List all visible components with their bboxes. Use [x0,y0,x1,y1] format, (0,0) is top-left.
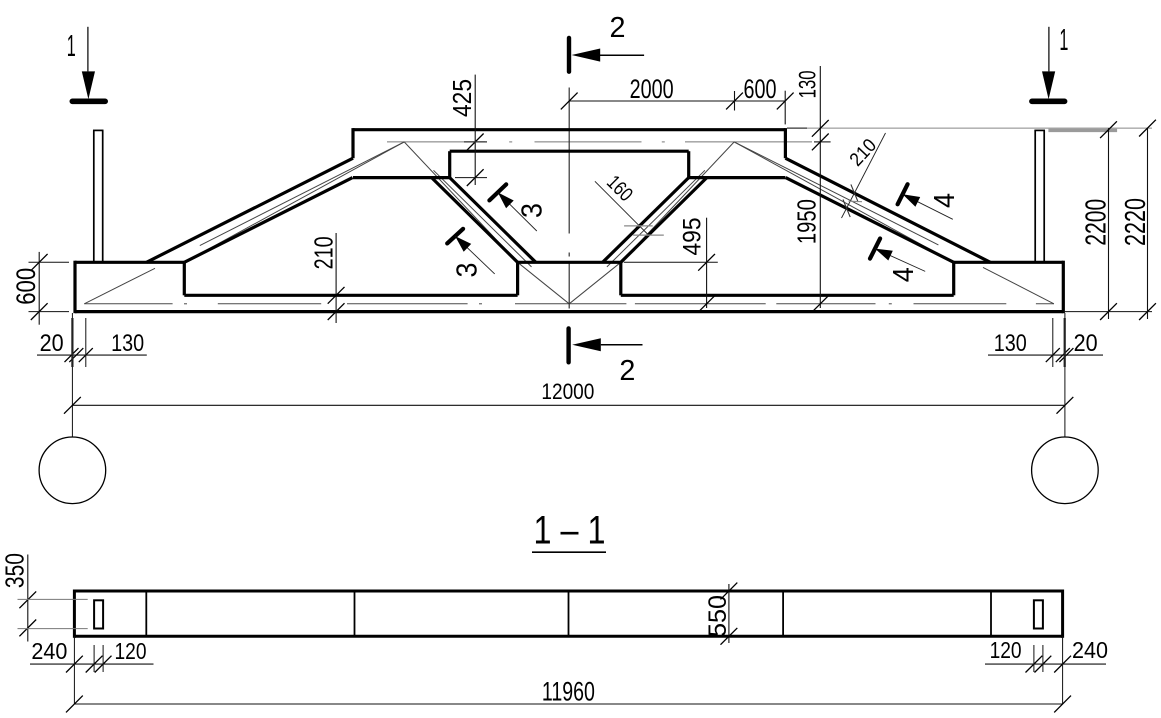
svg-text:2: 2 [619,355,635,387]
svg-text:20: 20 [40,330,64,357]
svg-text:600: 600 [744,74,777,104]
svg-text:120: 120 [115,638,147,664]
svg-text:2220: 2220 [1120,198,1152,246]
svg-text:2: 2 [610,12,626,44]
svg-text:120: 120 [990,637,1022,663]
svg-text:600: 600 [11,268,41,305]
svg-text:4: 4 [888,267,920,282]
svg-text:240: 240 [1072,637,1108,663]
svg-text:1: 1 [1059,22,1068,57]
svg-text:130: 130 [795,70,822,98]
svg-text:11960: 11960 [542,676,595,706]
svg-text:350: 350 [0,553,29,588]
svg-text:4: 4 [929,193,961,208]
svg-text:1: 1 [67,28,76,63]
svg-text:130: 130 [111,330,144,357]
svg-text:210: 210 [309,236,339,269]
svg-text:3: 3 [516,203,548,218]
svg-text:2000: 2000 [630,74,674,104]
svg-text:130: 130 [994,330,1027,357]
svg-text:240: 240 [31,638,67,664]
svg-text:3: 3 [451,263,483,278]
svg-text:12000: 12000 [541,379,594,404]
svg-text:2200: 2200 [1080,199,1112,246]
svg-text:1 – 1: 1 – 1 [534,509,606,553]
svg-text:20: 20 [1074,330,1098,357]
svg-text:1950: 1950 [792,199,822,244]
svg-text:425: 425 [447,79,477,117]
svg-text:550: 550 [704,595,732,637]
svg-text:495: 495 [679,218,707,256]
